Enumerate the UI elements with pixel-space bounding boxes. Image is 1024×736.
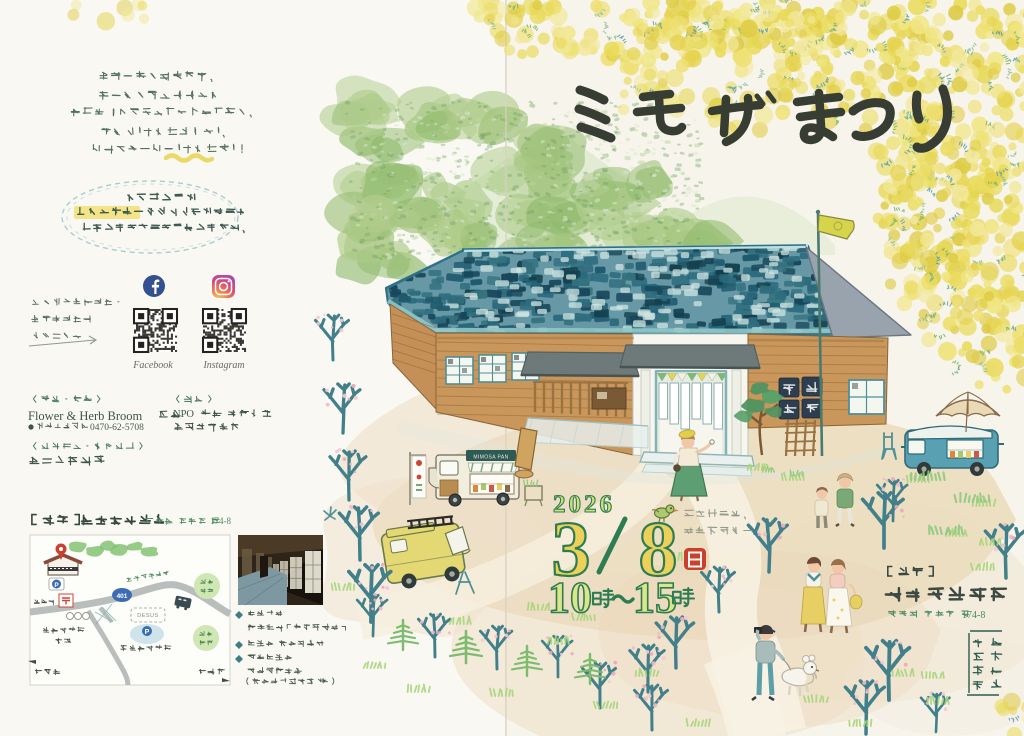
svg-text:Facebook: Facebook — [132, 360, 173, 371]
svg-text:DESUS: DESUS — [137, 613, 158, 619]
svg-text:174-8: 174-8 — [962, 610, 985, 621]
svg-text:15: 15 — [633, 573, 677, 622]
svg-text:NPO: NPO — [173, 409, 194, 420]
svg-text:401: 401 — [117, 593, 128, 600]
svg-text:Flower & Herb Broom: Flower & Herb Broom — [28, 409, 142, 423]
svg-text:Instagram: Instagram — [202, 360, 244, 371]
svg-text:P: P — [145, 629, 150, 636]
svg-text:10: 10 — [548, 573, 592, 622]
svg-text:MIMOSA PAN: MIMOSA PAN — [473, 455, 508, 461]
svg-text:174-8: 174-8 — [210, 516, 231, 526]
svg-text:P: P — [54, 582, 59, 589]
svg-text:0470-62-5708: 0470-62-5708 — [90, 423, 144, 433]
